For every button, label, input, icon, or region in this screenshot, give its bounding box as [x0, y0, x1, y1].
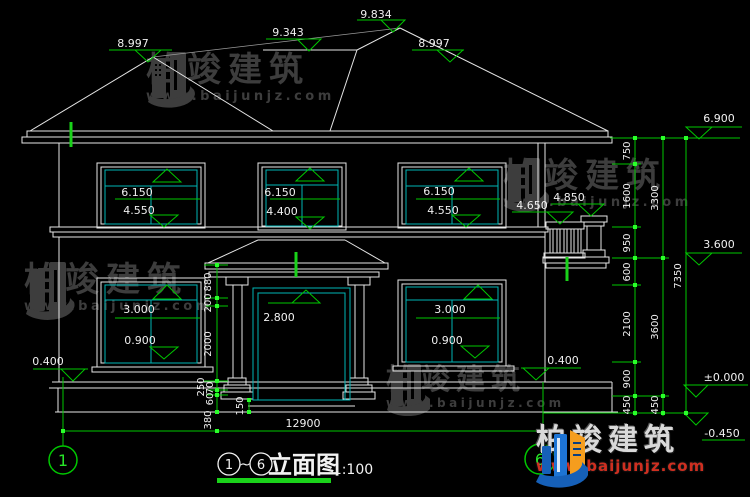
- dim-60: 60: [205, 393, 216, 406]
- level-terrace-left: 0.400: [32, 355, 64, 368]
- level-ridge-rear: 9.343: [272, 26, 304, 39]
- dim-880: 880: [203, 272, 214, 291]
- dim-70: 70: [205, 382, 216, 395]
- f2w2-sill: 4.400: [266, 205, 298, 218]
- title-axis-to: 6: [257, 458, 265, 473]
- level-marker-symbols: [33, 20, 748, 440]
- dim-750: 750: [622, 141, 633, 160]
- cad-elevation-sheet: 柏竣建筑 www.baijunjz.com 柏竣建筑 www.baijunjz.…: [0, 0, 750, 497]
- f2w3-lintel: 6.150: [423, 185, 455, 198]
- level-balcony-pillar: 4.850: [553, 191, 585, 204]
- dim-7350: 7350: [673, 263, 684, 288]
- dim-2000: 2000: [203, 331, 214, 356]
- level-eave: 6.900: [703, 112, 735, 125]
- dim-3600: 3600: [650, 314, 661, 339]
- window-level-labels: 6.150 4.550 6.150 4.400 6.150 4.550 3.00…: [121, 185, 466, 347]
- dim-200: 200: [203, 293, 214, 312]
- dim-3300: 3300: [650, 185, 661, 210]
- level-foundation: -0.450: [704, 427, 739, 440]
- brand-logo-icon: [536, 424, 588, 490]
- drawing-title: 1 ~ 6 立面图 1:100: [217, 451, 373, 483]
- dim-12900: 12900: [286, 417, 321, 430]
- grid-tick-marks: [71, 122, 567, 281]
- f2w2-lintel: 6.150: [264, 186, 296, 199]
- f2w1-lintel: 6.150: [121, 186, 153, 199]
- dim-950: 950: [622, 233, 633, 252]
- dim-450b: 450: [650, 395, 661, 414]
- f1w2-lintel: 3.000: [434, 303, 466, 316]
- dim-450a: 450: [622, 395, 633, 414]
- door-lintel: 2.800: [263, 311, 295, 324]
- roof: [22, 28, 612, 143]
- level-zero: ±0.000: [704, 371, 745, 384]
- title-scale: 1:100: [333, 462, 373, 478]
- f2w3-sill: 4.550: [427, 204, 459, 217]
- balcony: [543, 216, 609, 268]
- title-name: 立面图: [268, 451, 340, 479]
- left-chain-labels: 880 200 2000 250 70 60 380 150: [196, 272, 246, 429]
- f2w1-sill: 4.550: [123, 204, 155, 217]
- dim-900: 900: [622, 369, 633, 388]
- f1w2-sill: 0.900: [431, 334, 463, 347]
- level-balcony-rail: 4.650: [516, 199, 548, 212]
- left-dimension-chain: 880 200 2000 250 70 60 380 150: [196, 263, 251, 430]
- dim-150: 150: [235, 396, 246, 415]
- f1w1-lintel: 3.000: [123, 303, 155, 316]
- right-chain-labels: 750 1600 950 600 2100 900 450 3300 3600 …: [622, 141, 684, 414]
- brand-logo: 柏竣建筑 www.baijunjz.com: [536, 424, 705, 475]
- level-ridge-left: 8.997: [117, 37, 149, 50]
- axis-bubble-left-number: 1: [58, 451, 68, 470]
- entry-door: [253, 288, 350, 400]
- title-tilde: ~: [239, 457, 251, 473]
- dim-1600: 1600: [622, 183, 633, 208]
- level-slope-right: 8.997: [418, 37, 450, 50]
- dim-380: 380: [203, 410, 214, 429]
- window-f1-left: [92, 278, 213, 372]
- title-axis-from: 1: [225, 458, 233, 473]
- level-floor2: 3.600: [703, 238, 735, 251]
- level-terrace-right: 0.400: [547, 354, 579, 367]
- dim-600: 600: [622, 262, 633, 281]
- dim-2100: 2100: [622, 311, 633, 336]
- f1w1-sill: 0.900: [124, 334, 156, 347]
- title-underline: [217, 478, 331, 483]
- level-ridge-main: 9.834: [360, 8, 392, 21]
- window-f1-right: [393, 280, 514, 371]
